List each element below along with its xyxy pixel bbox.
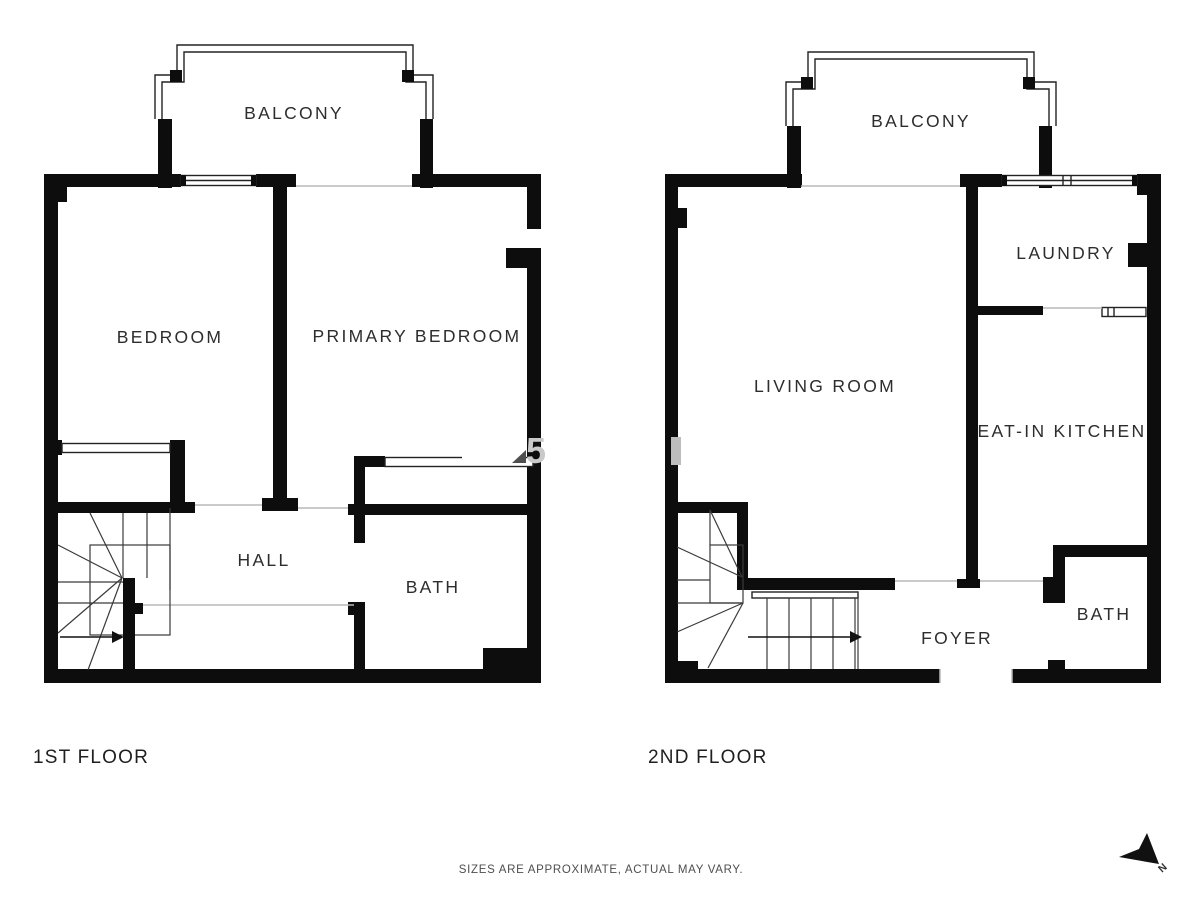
wall-block	[354, 456, 385, 467]
window-end	[1132, 175, 1137, 186]
closet-wall	[170, 440, 185, 508]
second-floor-plan: BALCONY LAUNDRY LIVING ROOM EAT-IN KITCH…	[648, 52, 1161, 768]
wall	[527, 174, 541, 229]
north-arrow-icon	[1119, 833, 1159, 864]
watermark-digit: 5	[526, 430, 546, 471]
wall	[527, 268, 541, 683]
stair-winder	[88, 578, 122, 670]
wall	[44, 174, 58, 683]
wall	[665, 669, 940, 683]
wall-nub	[58, 183, 67, 202]
north-label: N	[1156, 861, 1170, 875]
wall-nub	[50, 440, 62, 455]
laundry-wall	[966, 306, 1043, 315]
first-floor-plan: BALCONY BEDROOM PRIMARY BEDROOM HALL BAT…	[33, 45, 541, 768]
disclaimer-text: SIZES ARE APPROXIMATE, ACTUAL MAY VARY.	[459, 864, 743, 876]
hall-bath-wall	[348, 504, 533, 515]
railing-post	[801, 77, 813, 89]
stair-direction-arrow-icon	[850, 631, 862, 643]
stair-living-wall	[737, 578, 895, 590]
wall-nub	[135, 603, 143, 614]
bedroom-divider-wall	[273, 187, 287, 498]
stair-winder	[708, 603, 743, 668]
room-label-hall: HALL	[238, 550, 291, 570]
wall	[1012, 669, 1161, 683]
wall	[44, 669, 541, 683]
bath-wall	[354, 615, 365, 677]
window-end	[251, 175, 256, 186]
window-end	[1002, 175, 1007, 186]
watermark-band	[462, 451, 520, 464]
room-label-balcony-2: BALCONY	[871, 111, 971, 131]
window-end	[181, 175, 186, 186]
wall-nub	[678, 208, 687, 228]
stair-winder	[677, 603, 743, 632]
closet-front	[62, 444, 170, 453]
floor-label-2nd: 2ND FLOOR	[648, 747, 768, 768]
wall	[960, 174, 1002, 187]
wall	[256, 174, 296, 187]
wall	[665, 174, 802, 187]
wall-nub	[348, 602, 365, 615]
wall-block	[1128, 243, 1161, 267]
wall-foot	[262, 498, 298, 511]
room-label-bedroom: BEDROOM	[117, 327, 224, 347]
room-label-bath-1: BATH	[406, 577, 461, 597]
wall-foot	[957, 579, 980, 588]
first-floor-windows	[62, 175, 533, 467]
stair-handrail	[752, 592, 858, 598]
first-floor-stairs	[58, 508, 170, 670]
railing-post	[402, 70, 414, 82]
floor-plan-svg: BALCONY BEDROOM PRIMARY BEDROOM HALL BAT…	[0, 0, 1200, 900]
wall-jog	[678, 661, 698, 670]
watermark-bar	[671, 437, 681, 465]
wall	[665, 174, 678, 683]
bath-top-wall	[1053, 545, 1147, 557]
first-floor-walls	[44, 174, 541, 683]
railing-post	[170, 70, 182, 82]
room-label-foyer: FOYER	[921, 628, 993, 648]
bath-wall	[1053, 557, 1065, 603]
room-label-primary-bedroom: PRIMARY BEDROOM	[313, 326, 522, 346]
room-label-balcony-1: BALCONY	[244, 103, 344, 123]
room-label-laundry: LAUNDRY	[1016, 243, 1115, 263]
room-label-eat-in-kitchen: EAT-IN KITCHEN	[978, 421, 1147, 441]
duct-block	[483, 648, 541, 677]
north-arrow: N	[1119, 833, 1170, 875]
stair-direction-arrow-icon	[112, 631, 124, 643]
wall-nub	[1048, 660, 1065, 672]
wall-block	[506, 248, 541, 268]
floor-label-1st: 1ST FLOOR	[33, 747, 149, 768]
railing-post	[1023, 77, 1035, 89]
room-label-living-room: LIVING ROOM	[754, 376, 896, 396]
floor-plan-sheet: BALCONY BEDROOM PRIMARY BEDROOM HALL BAT…	[0, 0, 1200, 900]
room-label-bath-2: BATH	[1077, 604, 1132, 624]
living-kitchen-divider	[966, 187, 978, 579]
stair-center-wall	[123, 578, 135, 670]
stair-top-wall	[665, 502, 748, 513]
wall	[412, 174, 541, 187]
